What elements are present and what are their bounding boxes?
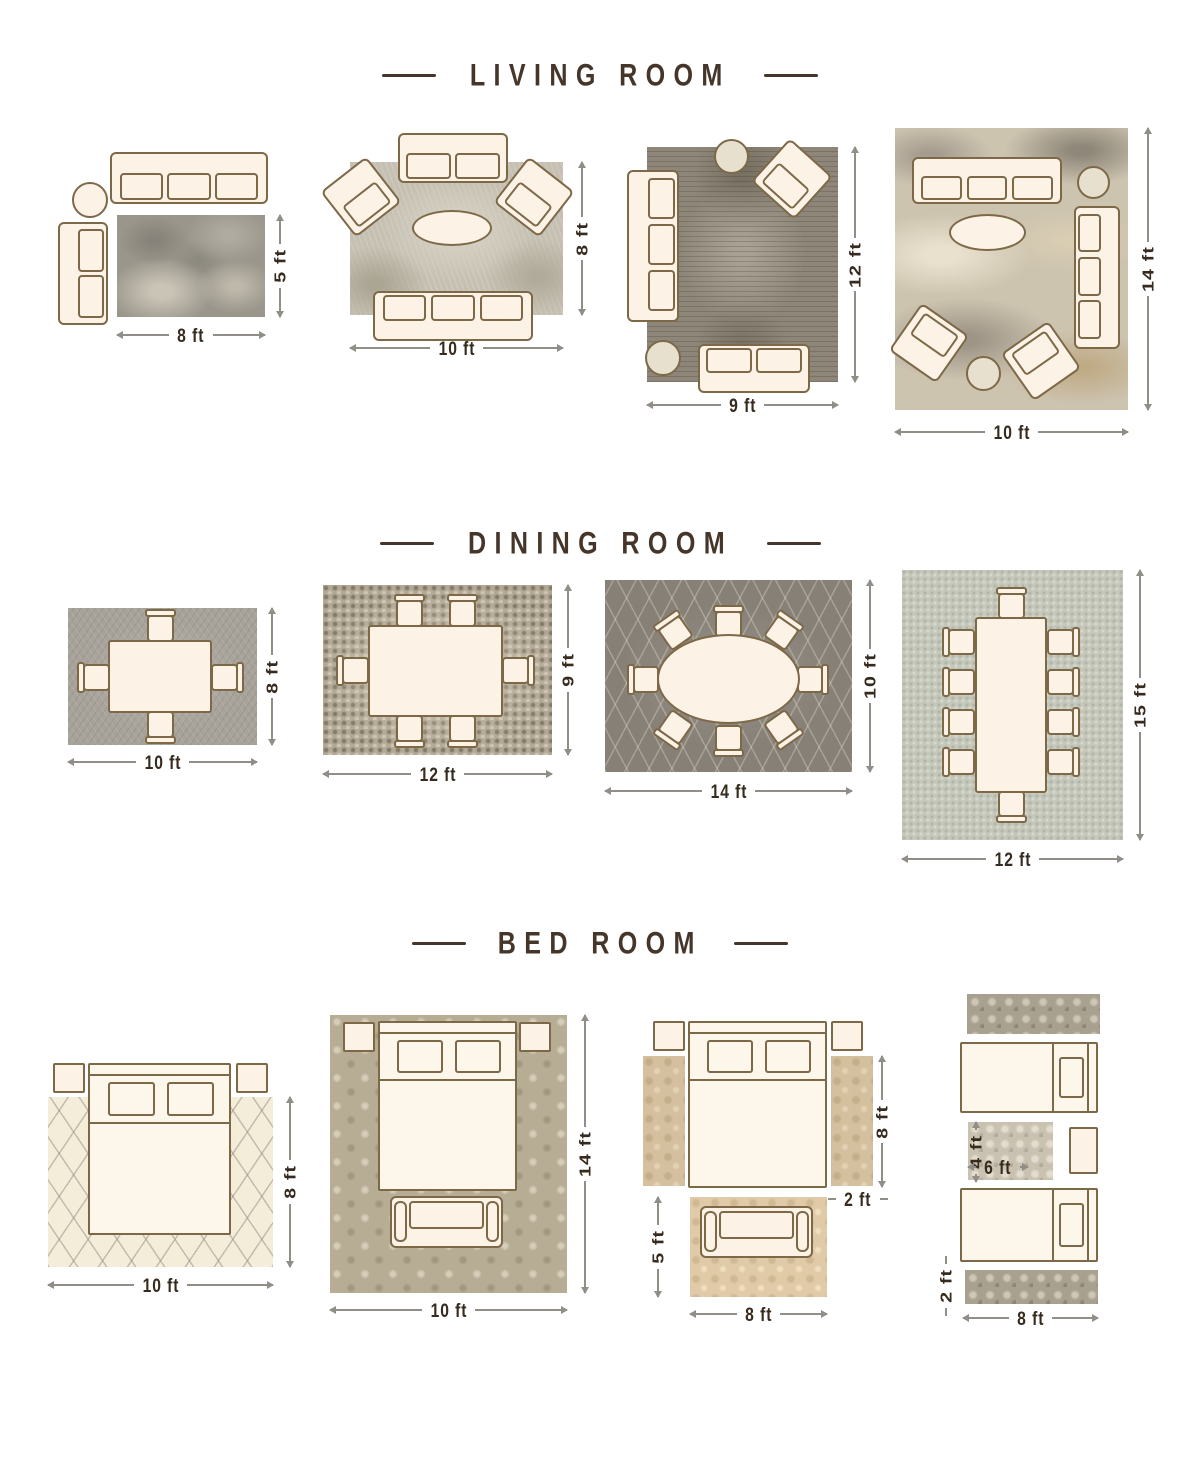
blanket-edge (1052, 1044, 1054, 1111)
blanket-edge (90, 1122, 229, 1124)
dining-chair (998, 593, 1025, 619)
rug-width-dimension: 12 ft (902, 849, 1123, 869)
rug-size-guide: LIVING ROOM 5 ft 8 ft 8 ft 10 ft (0, 0, 1200, 1467)
bed-room-section-title: BED ROOM (0, 926, 1200, 960)
dining-table (657, 634, 800, 724)
dimension-label: 10 ft (136, 1275, 186, 1295)
rug-height-dimension: 9 ft (558, 585, 578, 755)
dining-chair (948, 669, 975, 695)
blanket-edge (690, 1079, 825, 1081)
dimension-label: 8 ft (264, 651, 280, 701)
rug-height-dimension: 8 ft (572, 162, 592, 315)
dimension-label: 2 ft (838, 1189, 878, 1209)
dining-table (975, 617, 1047, 793)
armrest (704, 1211, 717, 1252)
dining-chair (502, 657, 529, 684)
rug-height-dimension: 8 ft (280, 1097, 300, 1267)
blanket-edge (1052, 1190, 1054, 1260)
headboard (1087, 1044, 1096, 1111)
section-heading: LIVING ROOM (470, 57, 731, 94)
rug-width-dimension: 10 ft (68, 752, 257, 772)
nightstand (236, 1063, 268, 1093)
rug-width-dimension: 9 ft (647, 395, 838, 415)
dining-chair (449, 600, 476, 627)
seat-cushion (648, 178, 674, 219)
seat-cushion (1012, 176, 1053, 200)
seat-cushion (1078, 300, 1101, 339)
dimension-label: 14 ft (577, 1123, 593, 1185)
twin-bed (960, 1042, 1098, 1113)
dimension-label: 8 ft (574, 213, 590, 263)
rug-width-dimension: 14 ft (605, 781, 852, 801)
dimension-label: 15 ft (1132, 674, 1148, 736)
seat-cushion (480, 295, 524, 320)
seat-cushion (1078, 257, 1101, 296)
sofa (373, 291, 533, 341)
section-heading: BED ROOM (497, 925, 702, 962)
nightstand (519, 1022, 551, 1052)
runner-height-dimension: 8 ft (872, 1056, 892, 1187)
title-dash-left (382, 74, 436, 77)
ottoman (714, 139, 749, 174)
headboard (380, 1023, 515, 1034)
seat-cushion (648, 224, 674, 265)
dimension-label: 14 ft (1140, 238, 1156, 300)
coffee-table (949, 214, 1026, 251)
dimension-label: 10 ft (432, 338, 482, 358)
pillow (397, 1040, 443, 1073)
dimension-line (279, 288, 281, 317)
ottoman (645, 340, 681, 376)
dining-chair (633, 666, 659, 693)
dining-chair (1047, 749, 1074, 775)
dimension-label: 10 ft (138, 752, 188, 772)
dining-chair (1047, 669, 1074, 695)
dimension-line (117, 334, 169, 336)
seat-cushion (120, 173, 163, 199)
title-dash-left (412, 942, 466, 945)
sofa (627, 170, 679, 322)
dining-chair (83, 664, 110, 691)
seat-cushion (406, 153, 451, 178)
dimension-label: 10 ft (862, 645, 878, 707)
nightstand (343, 1022, 375, 1052)
seat-cushion (648, 270, 674, 311)
runner-height-dimension: 2 ft (936, 1256, 956, 1314)
rug-width-dimension: 10 ft (895, 422, 1128, 442)
loveseat (58, 222, 108, 325)
seat-cushion (921, 176, 962, 200)
seat-cushion (1078, 214, 1101, 253)
sofa (110, 152, 268, 204)
title-dash-left (380, 542, 434, 545)
dining-chair (342, 657, 369, 684)
nightstand (831, 1021, 863, 1051)
side-table (72, 182, 108, 218)
runner-rug (965, 1270, 1098, 1304)
seat-cushion (215, 173, 258, 199)
settee (700, 1206, 813, 1258)
dining-chair (797, 666, 823, 693)
seat-cushion (167, 173, 210, 199)
headboard (1087, 1190, 1096, 1260)
nightstand (653, 1021, 685, 1051)
sofa (912, 157, 1062, 204)
title-dash-right (764, 74, 818, 77)
bed (88, 1063, 231, 1235)
rug-width-dimension: 10 ft (48, 1275, 273, 1295)
dimension-line (213, 334, 265, 336)
dimension-label: 2 ft (938, 1261, 954, 1311)
rug-height-dimension: 10 ft (860, 580, 880, 772)
dining-chair (1047, 709, 1074, 735)
rug-width-dimension: 8 ft (690, 1304, 827, 1324)
dimension-label: 5 ft (272, 241, 288, 291)
loveseat (398, 133, 508, 183)
dining-chair (211, 664, 238, 691)
sofa (1074, 206, 1120, 349)
dining-room-section-title: DINING ROOM (0, 526, 1200, 560)
dining-chair (396, 715, 423, 742)
dining-chair (948, 749, 975, 775)
dimension-label: 10 ft (987, 422, 1037, 442)
dining-chair (998, 791, 1025, 817)
seat-cushion (78, 275, 103, 318)
dining-chair (1047, 629, 1074, 655)
loveseat (698, 344, 810, 393)
ottoman (966, 356, 1001, 391)
blanket-edge (380, 1079, 515, 1081)
dimension-label: 12 ft (988, 849, 1038, 869)
seat-cushion (756, 348, 801, 373)
dimension-label: 9 ft (722, 395, 762, 415)
dimension-label: 8 ft (874, 1096, 890, 1146)
runner-width-dimension: 2 ft (828, 1190, 892, 1208)
bed (378, 1021, 517, 1191)
nightstand (1069, 1127, 1098, 1174)
dining-chair (147, 615, 174, 642)
rug-width-dimension: 10 ft (330, 1300, 567, 1320)
dimension-label: 14 ft (704, 781, 754, 801)
rug (117, 215, 265, 317)
seat-cushion (455, 153, 500, 178)
dining-table (368, 625, 503, 717)
dimension-label: 10 ft (424, 1300, 474, 1320)
rug-width-dimension: 12 ft (323, 764, 552, 784)
pillow (167, 1082, 214, 1116)
pillow (1059, 1057, 1084, 1099)
dimension-label: 8 ft (171, 325, 211, 345)
rug-height-dimension: 14 ft (575, 1015, 595, 1293)
seat-cushion (383, 295, 427, 320)
pillow (455, 1040, 501, 1073)
headboard (690, 1023, 825, 1034)
rug-width-dimension: 10 ft (350, 338, 563, 358)
dimension-label: 6 ft (978, 1157, 1018, 1177)
runner-rug (643, 1056, 685, 1186)
coffee-table (412, 210, 492, 246)
armrest (394, 1201, 407, 1242)
pillow (108, 1082, 155, 1116)
rug-height-dimension: 14 ft (1138, 128, 1158, 410)
title-dash-right (767, 542, 821, 545)
dining-chair (147, 711, 174, 738)
dining-chair (715, 725, 742, 751)
rug-height-dimension: 12 ft (845, 147, 865, 382)
seat-cushion (78, 229, 103, 272)
title-dash-right (734, 942, 788, 945)
dimension-label: 9 ft (560, 645, 576, 695)
seat-cushion (967, 176, 1008, 200)
bench (390, 1196, 503, 1248)
rug-height-dimension: 5 ft (270, 215, 290, 317)
dining-chair (449, 715, 476, 742)
dining-table (108, 640, 212, 713)
pillow (765, 1040, 811, 1073)
accent-rug-width-dimension: 6 ft (968, 1158, 1053, 1176)
seat-cushion (719, 1211, 793, 1239)
pillow (707, 1040, 753, 1073)
seat-cushion (431, 295, 475, 320)
dining-chair (948, 629, 975, 655)
nightstand (53, 1063, 85, 1093)
armrest (486, 1201, 499, 1242)
dimension-label: 12 ft (847, 233, 863, 295)
dimension-label: 8 ft (738, 1304, 778, 1324)
rug-height-dimension: 8 ft (262, 608, 282, 745)
bed (688, 1021, 827, 1188)
ottoman (1077, 166, 1110, 199)
rug-width-dimension: 8 ft (117, 325, 265, 345)
runner-rug (831, 1056, 873, 1186)
runner-rug (967, 994, 1100, 1034)
dimension-label: 12 ft (413, 764, 463, 784)
runner-width-dimension: 8 ft (963, 1308, 1098, 1328)
rug-height-dimension: 15 ft (1130, 570, 1150, 840)
section-heading: DINING ROOM (467, 525, 732, 562)
seat-cushion (706, 348, 751, 373)
headboard (90, 1065, 229, 1076)
dimension-label: 5 ft (650, 1222, 666, 1272)
dimension-label: 8 ft (282, 1157, 298, 1207)
seat-cushion (409, 1201, 483, 1229)
rug-height-dimension: 5 ft (648, 1197, 668, 1297)
dining-chair (948, 709, 975, 735)
dining-chair (396, 600, 423, 627)
armrest (796, 1211, 809, 1252)
twin-bed (960, 1188, 1098, 1262)
pillow (1059, 1203, 1084, 1246)
living-room-section-title: LIVING ROOM (0, 58, 1200, 92)
dimension-label: 8 ft (1010, 1308, 1050, 1328)
